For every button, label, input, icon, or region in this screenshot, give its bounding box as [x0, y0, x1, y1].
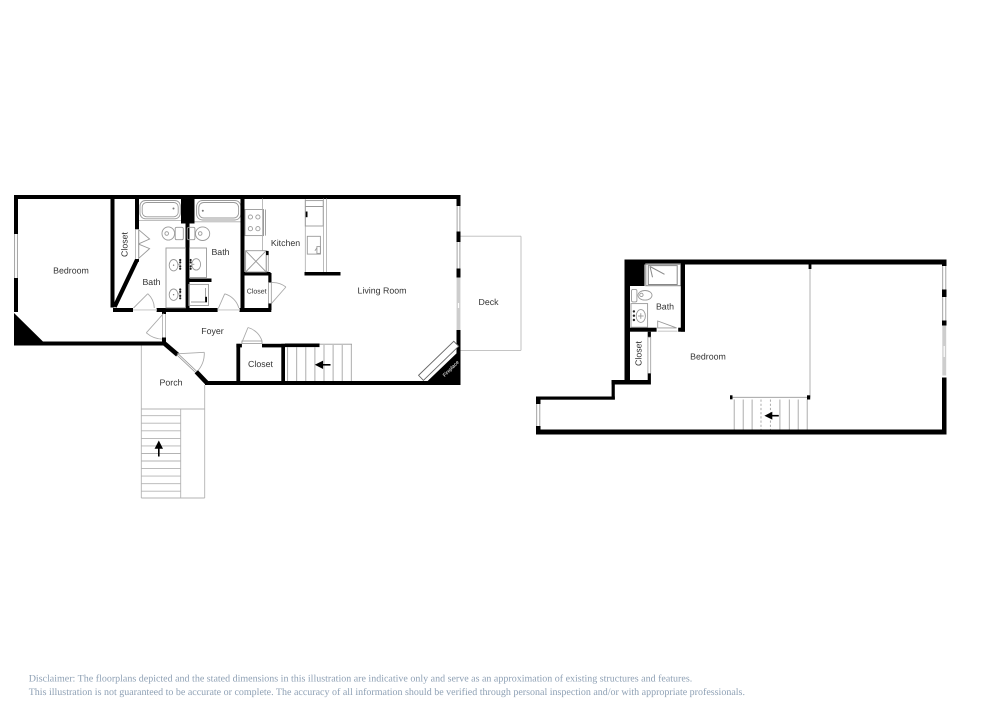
svg-text:Foyer: Foyer	[201, 326, 224, 336]
svg-text:Bedroom: Bedroom	[690, 352, 726, 362]
svg-text:Bath: Bath	[211, 247, 229, 257]
svg-text:Bedroom: Bedroom	[53, 266, 89, 276]
svg-text:Deck: Deck	[478, 297, 499, 307]
svg-text:Bath: Bath	[142, 277, 160, 287]
svg-text:Disclaimer: The floorplans dep: Disclaimer: The floorplans depicted and …	[29, 673, 693, 684]
svg-text:Closet: Closet	[634, 340, 644, 365]
svg-text:Bath: Bath	[656, 302, 674, 312]
svg-text:Closet: Closet	[247, 288, 267, 296]
svg-text:This illustration is not guara: This illustration is not guaranteed to b…	[29, 687, 745, 698]
svg-text:Kitchen: Kitchen	[271, 238, 300, 248]
svg-text:Porch: Porch	[160, 378, 183, 388]
svg-text:Closet: Closet	[248, 359, 273, 369]
svg-text:Closet: Closet	[120, 231, 130, 256]
svg-text:Living Room: Living Room	[358, 286, 407, 296]
